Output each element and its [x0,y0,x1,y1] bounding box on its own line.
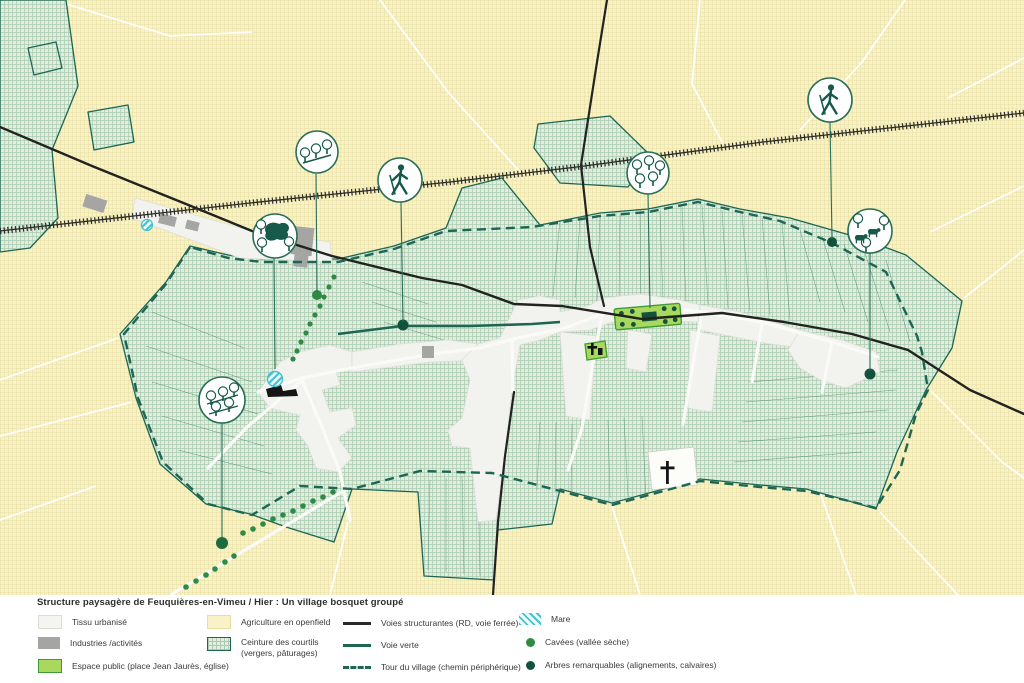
voie-verte-line-swatch [343,644,371,647]
callout-walker-icon [378,158,422,202]
callout-walker-icon [808,78,852,122]
tissu-swatch [38,615,62,629]
espace-public-swatch [38,659,62,673]
legend-item-agriculture: Agriculture en openfield [207,615,330,629]
mare-icon [142,220,153,231]
arbre-dot-swatch [526,661,535,670]
tour-village-line-swatch [343,666,371,669]
legend-item-tour-village: Tour du village (chemin périphérique) [343,662,521,672]
callout-orchard-rows-icon [199,377,245,423]
callout-orchard-trees-icon [627,152,669,194]
legend-item-industries: Industries /activités [38,637,142,649]
legend-title: Structure paysagère de Feuquières-en-Vim… [37,597,404,608]
callout-pasture-cows-icon [848,209,892,253]
legend-item-espace-public: Espace public (place Jean Jaurès, église… [38,659,229,673]
cavee-dot-swatch [526,638,535,647]
agriculture-swatch [207,615,231,629]
legend: Structure paysagère de Feuquières-en-Vim… [0,595,1024,683]
callout-grove-trees-icon [253,214,297,258]
legend-item-courtils: Ceinture des courtils (vergers, pâturage… [207,637,318,659]
landscape-map [0,0,1024,595]
legend-item-tissu: Tissu urbanisé [38,615,127,629]
legend-item-cavees: Cavées (vallée sèche) [519,637,629,647]
mare-icon [268,372,283,387]
legend-item-voies: Voies structurantes (RD, voie ferrée) [343,618,518,628]
industries-swatch [38,637,60,649]
church-icon [585,341,607,360]
legend-item-arbres: Arbres remarquables (alignements, calvai… [519,660,717,670]
legend-item-mare: Mare [519,613,570,625]
callout-aligned-trees-icon [296,131,338,173]
map-canvas [0,0,1024,595]
mare-swatch [519,613,541,625]
legend-item-voie-verte: Voie verte [343,640,419,650]
voies-line-swatch [343,622,371,625]
courtils-swatch [207,637,231,651]
